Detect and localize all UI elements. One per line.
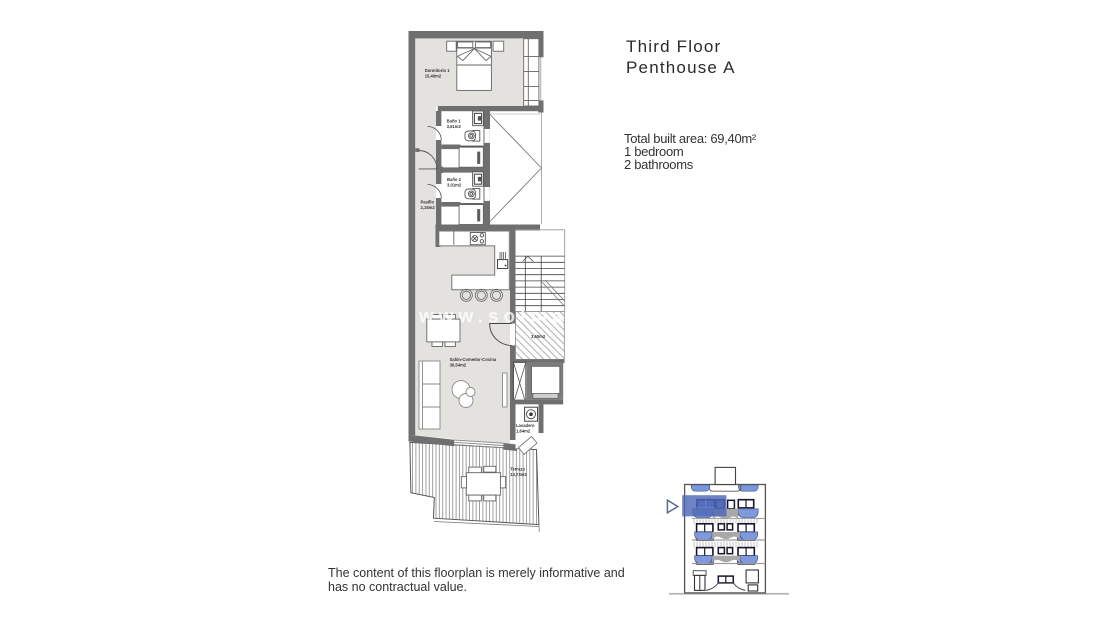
- svg-text:www.solmar: www.solmar: [418, 307, 580, 328]
- svg-text:3,61m2: 3,61m2: [447, 124, 462, 129]
- svg-text:3,60m2: 3,60m2: [531, 334, 546, 339]
- svg-text:Baño 2: Baño 2: [447, 177, 462, 182]
- svg-text:13,73m2: 13,73m2: [510, 472, 527, 477]
- svg-text:Baño 1: Baño 1: [447, 119, 462, 124]
- svg-text:Terraza: Terraza: [510, 467, 525, 472]
- svg-text:1,64m2: 1,64m2: [516, 429, 531, 434]
- svg-text:3,01m2: 3,01m2: [447, 183, 462, 188]
- svg-text:2,15m2: 2,15m2: [421, 205, 436, 210]
- svg-text:30,54m2: 30,54m2: [450, 363, 467, 368]
- svg-text:Lavadero: Lavadero: [516, 423, 535, 428]
- svg-text:Pasillo: Pasillo: [421, 200, 435, 205]
- svg-text:15,40m2: 15,40m2: [425, 74, 442, 79]
- svg-text:Dormitorio 1: Dormitorio 1: [425, 68, 451, 73]
- svg-text:Salón-Comedor-Cocina: Salón-Comedor-Cocina: [450, 357, 497, 362]
